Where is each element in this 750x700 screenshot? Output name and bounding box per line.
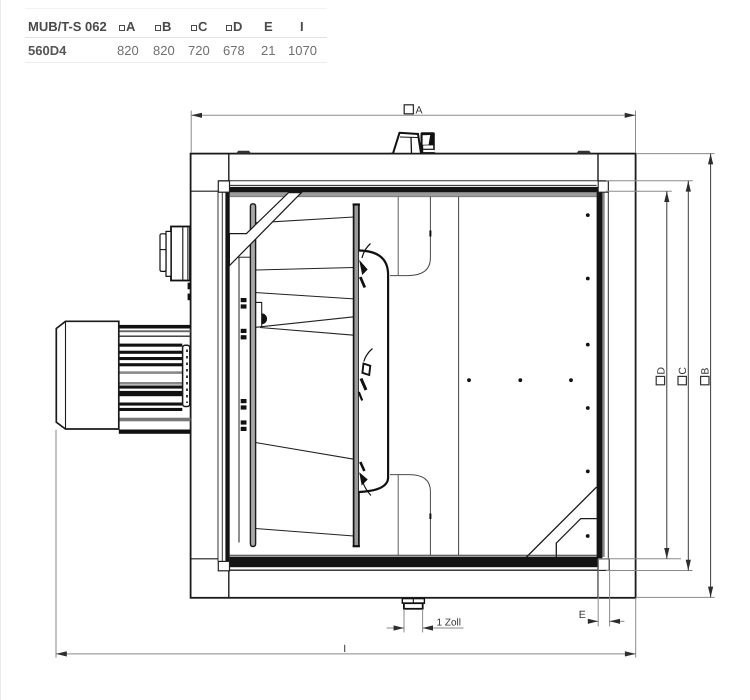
svg-text:I: I [343,643,346,655]
svg-text:B: B [700,368,712,375]
svg-text:A: A [416,105,423,117]
svg-text:E: E [579,609,586,621]
svg-text:D: D [655,367,667,375]
svg-text:1 Zoll: 1 Zoll [437,617,461,628]
svg-text:C: C [677,367,689,375]
